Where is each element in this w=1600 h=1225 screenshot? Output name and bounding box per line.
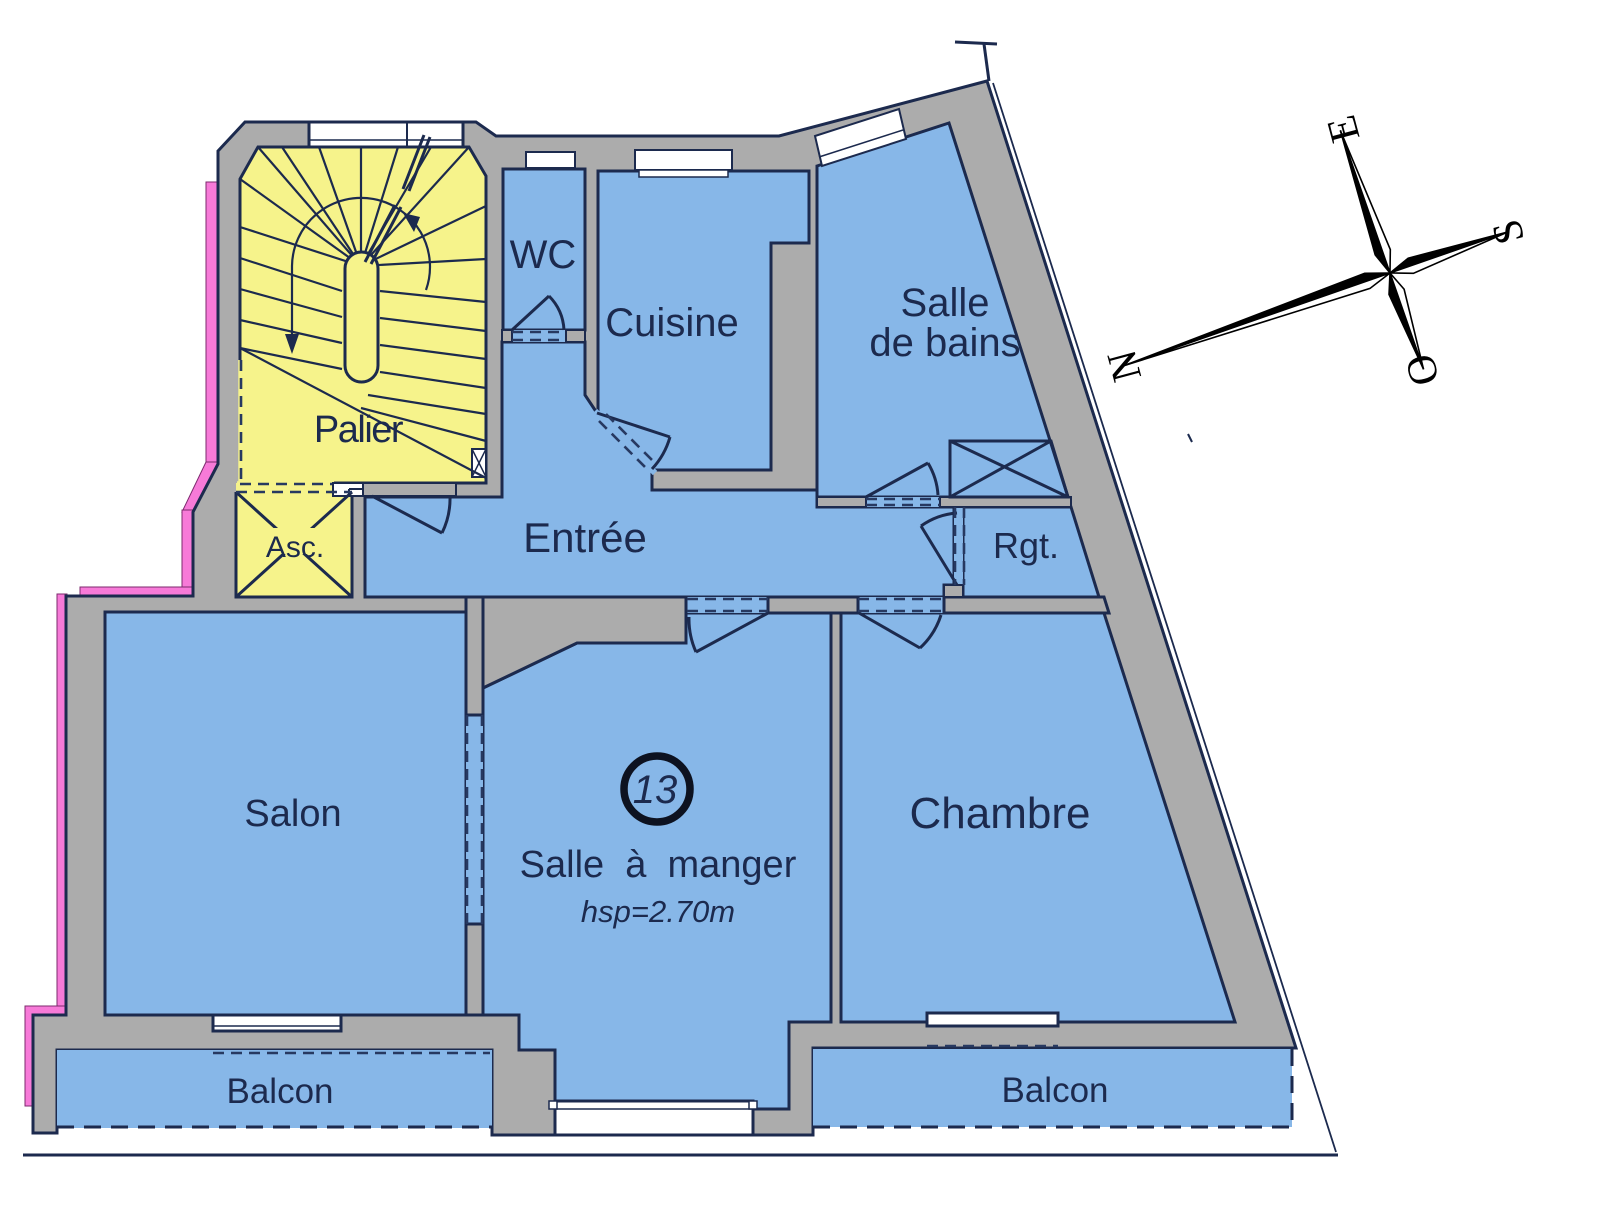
svg-text:Palier: Palier <box>314 409 404 451</box>
svg-text:hsp=2.70m: hsp=2.70m <box>581 894 735 929</box>
svg-text:Asc.: Asc. <box>266 531 324 564</box>
svg-text:Chambre: Chambre <box>910 789 1091 838</box>
svg-text:Salon: Salon <box>244 793 341 835</box>
svg-text:Rgt.: Rgt. <box>993 525 1059 566</box>
svg-text:Salle: Salle <box>901 281 990 325</box>
svg-text:de bains: de bains <box>869 321 1020 365</box>
svg-text:Salle à manger: Salle à manger <box>520 844 797 886</box>
svg-text:WC: WC <box>510 233 577 277</box>
svg-text:Entrée: Entrée <box>523 514 647 561</box>
svg-text:Balcon: Balcon <box>1001 1071 1108 1110</box>
svg-text:13: 13 <box>633 768 678 812</box>
svg-text:Balcon: Balcon <box>226 1072 333 1111</box>
svg-text:Cuisine: Cuisine <box>605 301 738 345</box>
